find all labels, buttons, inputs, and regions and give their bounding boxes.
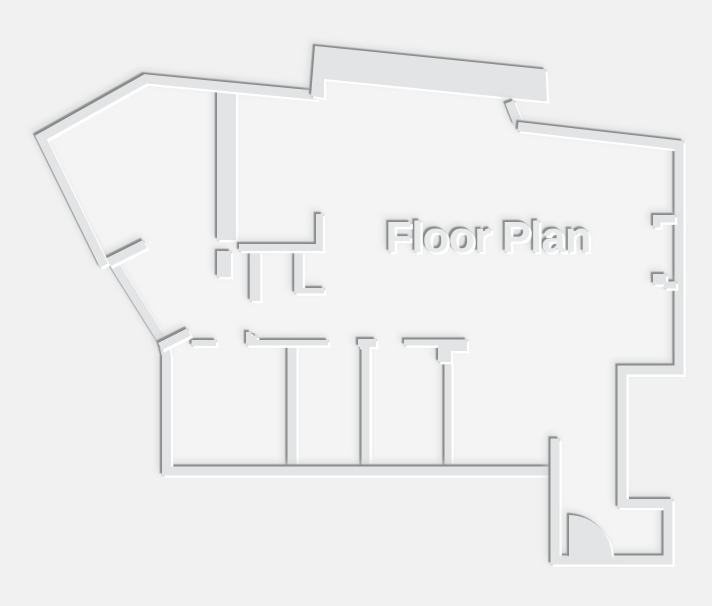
svg-text:Floor Plan: Floor Plan <box>386 214 591 262</box>
